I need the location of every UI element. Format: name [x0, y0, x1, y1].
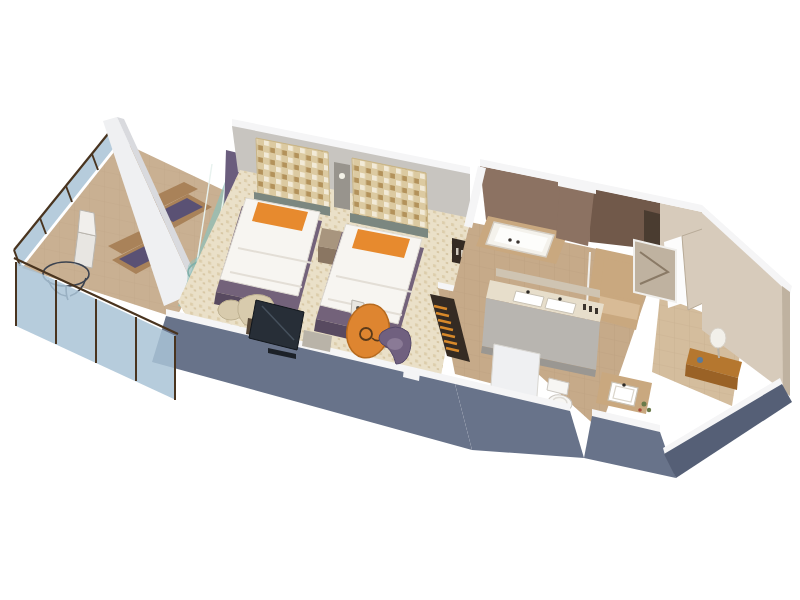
lamp-shade [710, 328, 726, 348]
tap [526, 290, 530, 294]
vase [697, 357, 703, 363]
tap [558, 297, 562, 301]
plant [638, 408, 642, 412]
mirror-panel [634, 240, 676, 302]
entry-right-wall-edge [782, 286, 790, 396]
divider-wall [556, 186, 594, 246]
plant [647, 408, 651, 412]
floor-plan-rendering: 3D isometric floor plan rendering of a h… [0, 0, 800, 600]
plant [642, 402, 647, 407]
chair-seat [74, 232, 96, 268]
wall-lamp-panel [334, 162, 350, 210]
wall-lamp [339, 173, 345, 179]
front-wall-entry [584, 416, 676, 478]
tub-chair-seat [387, 338, 403, 350]
chair-back [78, 210, 96, 236]
tub-faucet [508, 238, 512, 242]
tap [622, 383, 626, 387]
floor-plan-canvas: 3D isometric floor plan rendering of a h… [0, 0, 800, 600]
tub-faucet [516, 240, 520, 244]
